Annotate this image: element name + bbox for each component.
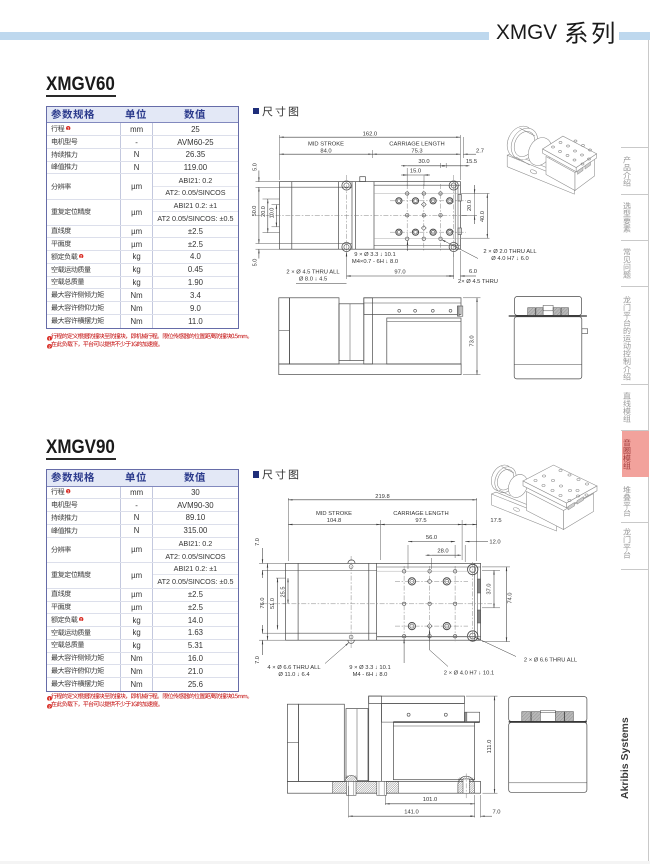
svg-text:CARRIAGE LENGTH: CARRIAGE LENGTH (393, 511, 448, 517)
svg-text:15.0: 15.0 (410, 168, 421, 174)
svg-text:7.0: 7.0 (492, 810, 500, 816)
svg-text:4 × Ø 6.6 THRU ALL: 4 × Ø 6.6 THRU ALL (267, 665, 321, 671)
svg-text:2 × Ø 2.0 THRU ALL: 2 × Ø 2.0 THRU ALL (483, 249, 537, 255)
svg-text:25.5: 25.5 (281, 587, 287, 598)
svg-text:56.0: 56.0 (426, 535, 437, 541)
svg-text:7.0: 7.0 (255, 538, 261, 546)
svg-text:28.0: 28.0 (437, 549, 448, 555)
svg-text:162.0: 162.0 (363, 131, 378, 137)
svg-text:101.0: 101.0 (423, 797, 438, 803)
svg-text:20.0: 20.0 (261, 206, 267, 217)
svg-text:50.0: 50.0 (252, 206, 258, 217)
svg-text:37.0: 37.0 (487, 584, 493, 595)
svg-text:30.0: 30.0 (418, 159, 429, 165)
svg-text:9 × Ø 3.3 ↓ 10.1: 9 × Ø 3.3 ↓ 10.1 (354, 252, 395, 258)
svg-text:Ø 4.0 H7 ↓ 6.0: Ø 4.0 H7 ↓ 6.0 (491, 256, 528, 262)
svg-text:219.8: 219.8 (375, 494, 390, 500)
svg-text:Ø 11.0 ↓ 6.4: Ø 11.0 ↓ 6.4 (278, 672, 310, 678)
svg-text:10.0: 10.0 (269, 208, 275, 219)
svg-text:2: 2 (81, 618, 83, 622)
svg-text:1: 1 (67, 490, 69, 494)
svg-text:73.0: 73.0 (469, 335, 475, 346)
svg-text:97.5: 97.5 (415, 518, 426, 524)
svg-text:20.0: 20.0 (467, 200, 473, 211)
svg-text:2× Ø 4.5 THRU: 2× Ø 4.5 THRU (458, 279, 498, 285)
svg-text:84.0: 84.0 (320, 149, 331, 155)
svg-text:M4×0.7 - 6H ↓ 8.0: M4×0.7 - 6H ↓ 8.0 (352, 259, 398, 265)
svg-text:2 × Ø 6.6 THRU ALL: 2 × Ø 6.6 THRU ALL (524, 658, 578, 664)
svg-text:2 × Ø 4.0 H7 ↓ 10.1: 2 × Ø 4.0 H7 ↓ 10.1 (444, 671, 494, 677)
svg-text:5.0: 5.0 (252, 259, 258, 267)
svg-text:12.0: 12.0 (489, 540, 500, 546)
svg-text:MID STROKE: MID STROKE (308, 142, 344, 148)
svg-text:5.0: 5.0 (252, 163, 258, 171)
svg-text:6.0: 6.0 (469, 269, 477, 275)
svg-text:1: 1 (67, 127, 69, 131)
svg-text:51.0: 51.0 (270, 598, 276, 609)
svg-text:2: 2 (81, 254, 83, 258)
svg-text:2.7: 2.7 (476, 149, 484, 155)
svg-text:141.0: 141.0 (404, 810, 419, 816)
svg-text:2 × Ø 4.5 THRU ALL: 2 × Ø 4.5 THRU ALL (286, 269, 340, 275)
svg-text:104.8: 104.8 (327, 518, 342, 524)
svg-text:40.0: 40.0 (480, 211, 486, 222)
svg-text:97.0: 97.0 (394, 270, 405, 276)
svg-text:Ø 8.0 ↓ 4.5: Ø 8.0 ↓ 4.5 (299, 277, 327, 283)
svg-text:74.0: 74.0 (508, 593, 514, 604)
svg-text:CARRIAGE LENGTH: CARRIAGE LENGTH (389, 142, 444, 148)
svg-text:75.3: 75.3 (411, 149, 422, 155)
svg-text:9 × Ø 3.3 ↓ 10.1: 9 × Ø 3.3 ↓ 10.1 (349, 665, 390, 671)
svg-text:15.5: 15.5 (466, 159, 477, 165)
svg-text:17.5: 17.5 (490, 518, 501, 524)
svg-text:111.0: 111.0 (487, 740, 493, 754)
svg-text:76.0: 76.0 (260, 598, 266, 609)
svg-text:7.0: 7.0 (255, 656, 261, 664)
svg-text:MID STROKE: MID STROKE (316, 511, 352, 517)
svg-text:M4 - 6H ↓ 8.0: M4 - 6H ↓ 8.0 (353, 672, 388, 678)
